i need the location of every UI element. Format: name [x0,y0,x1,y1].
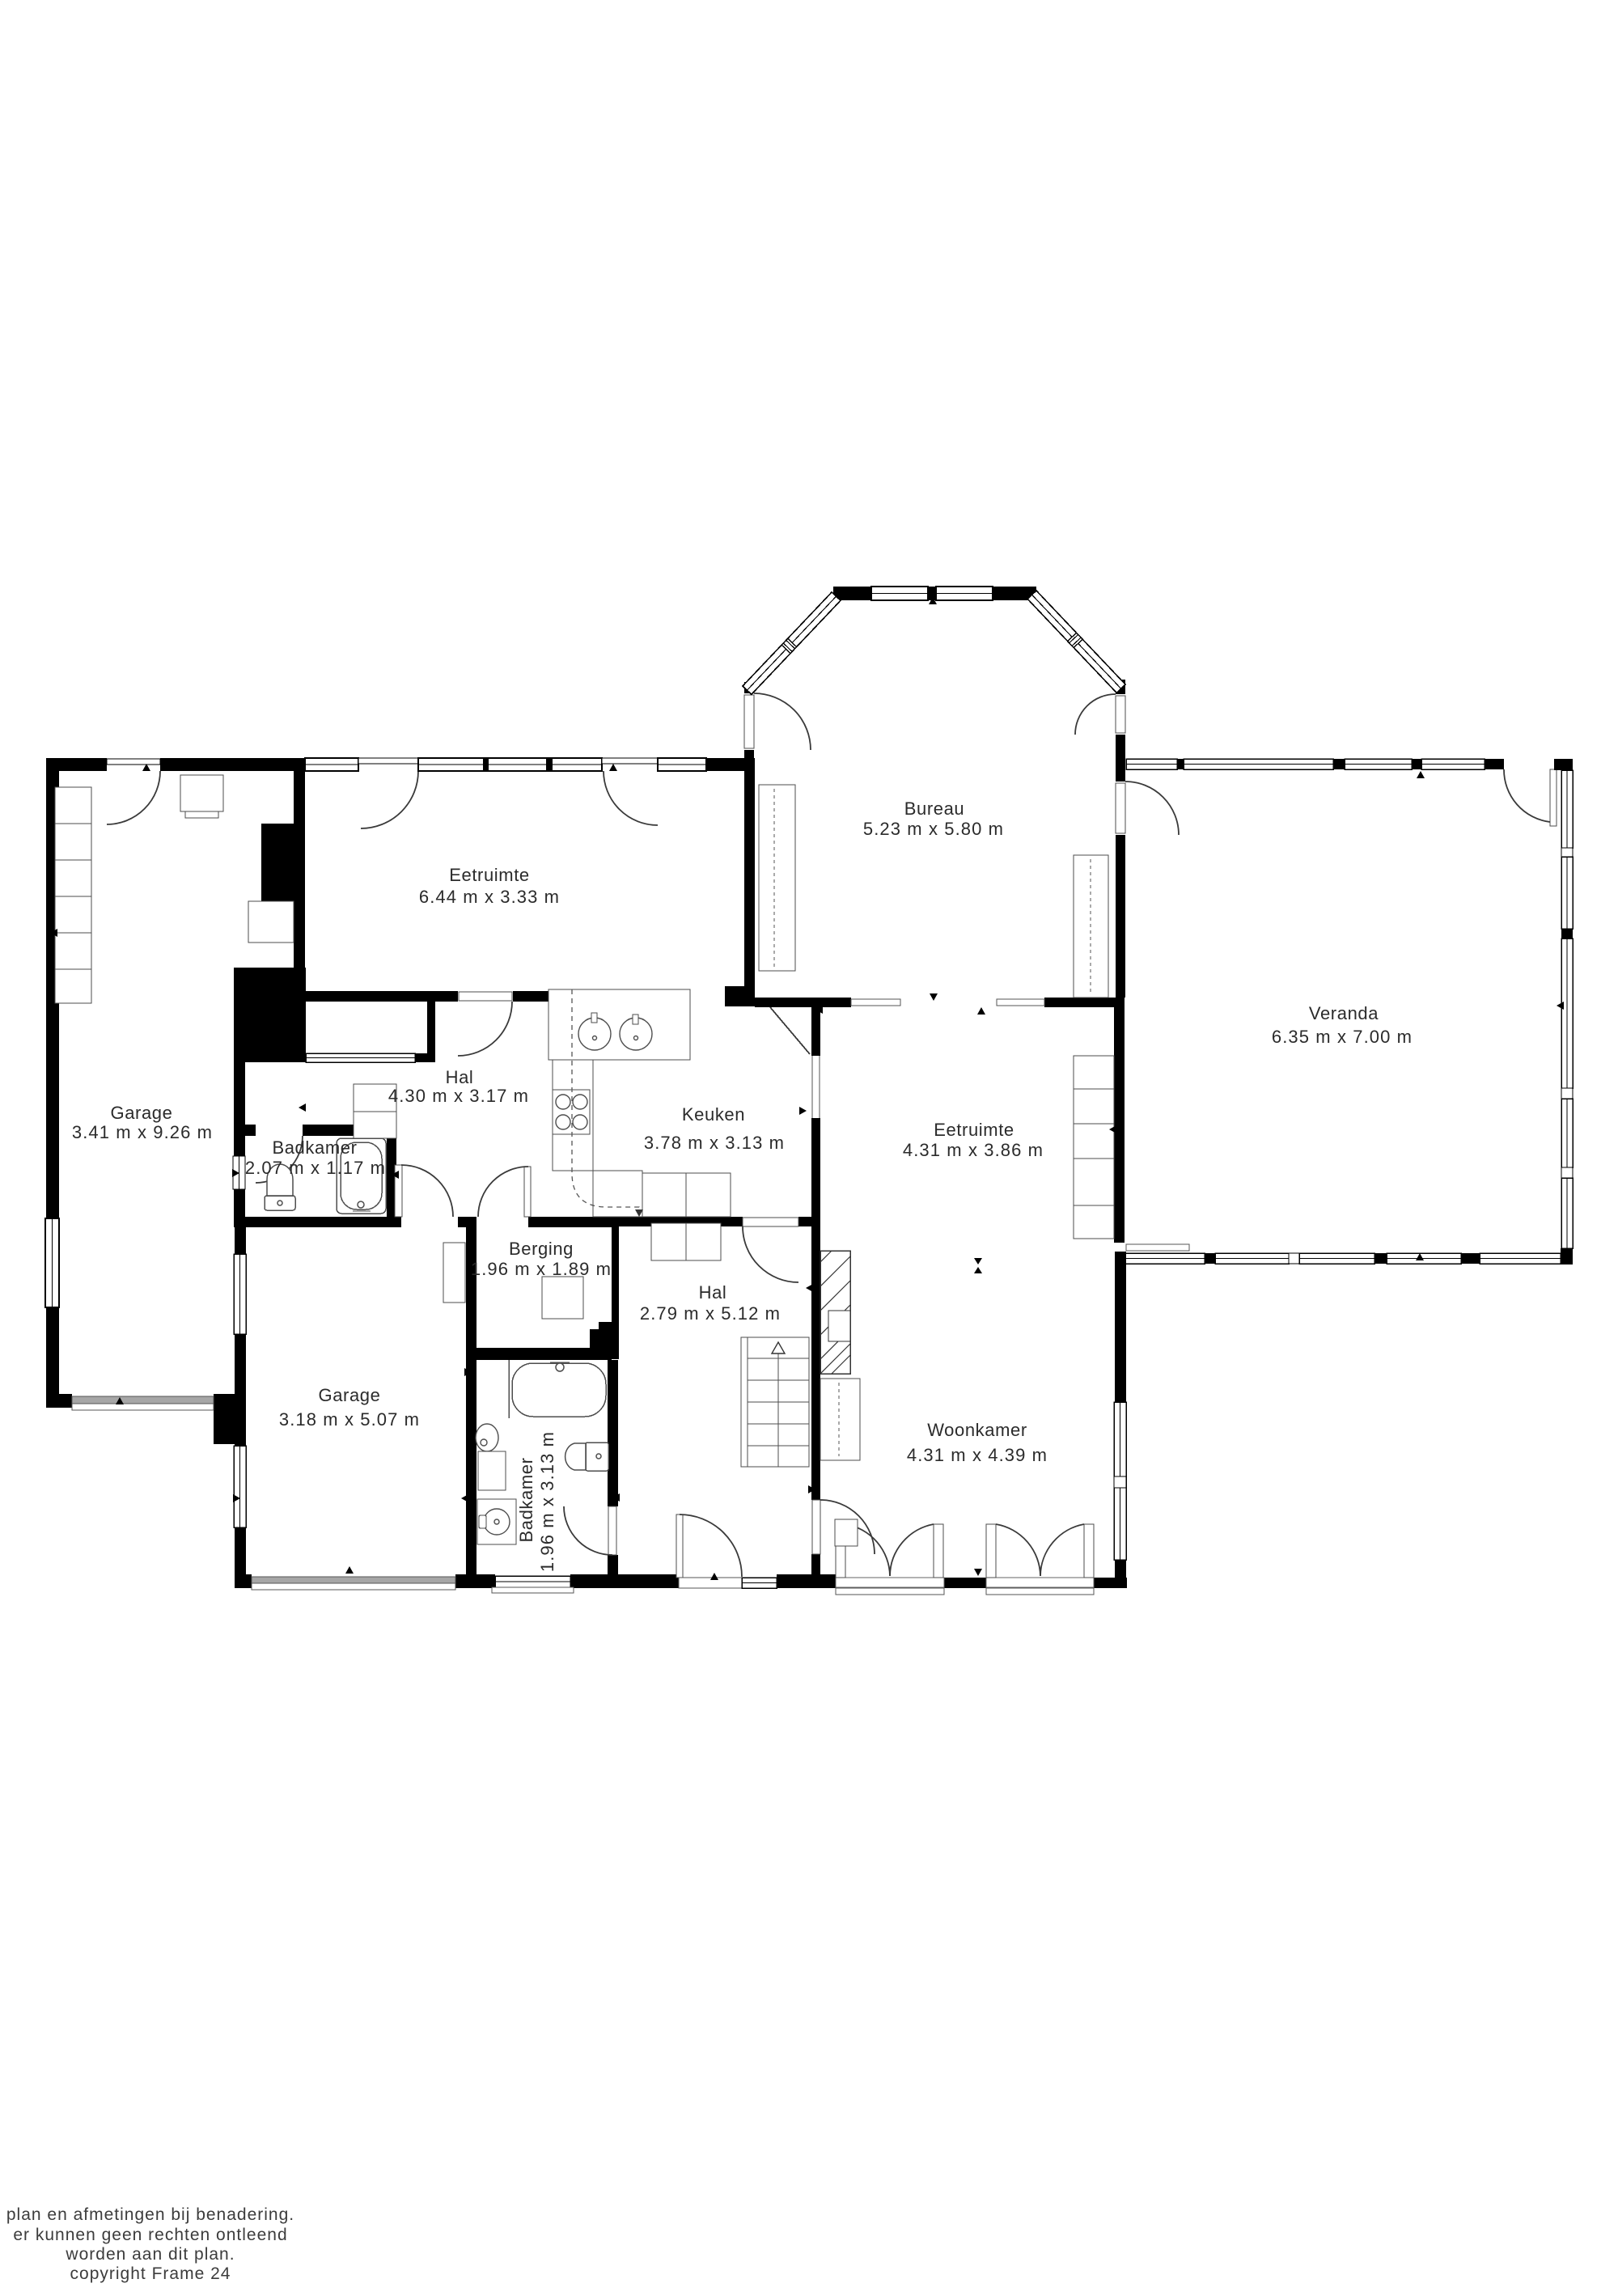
svg-text:Garage: Garage [111,1103,173,1123]
svg-text:Eetruimte: Eetruimte [934,1120,1014,1140]
svg-text:1.96 m x 3.13 m: 1.96 m x 3.13 m [537,1431,557,1572]
svg-text:copyright Frame 24: copyright Frame 24 [70,2264,231,2283]
svg-text:4.31 m x 3.86 m: 4.31 m x 3.86 m [903,1140,1044,1160]
svg-text:plan en afmetingen bij benader: plan en afmetingen bij benadering. [6,2205,294,2224]
svg-text:worden aan dit plan.: worden aan dit plan. [65,2245,235,2264]
svg-text:Eetruimte: Eetruimte [449,865,530,885]
svg-text:Woonkamer: Woonkamer [927,1420,1027,1440]
svg-text:Badkamer: Badkamer [272,1137,357,1158]
svg-text:er kunnen geen rechten ontleen: er kunnen geen rechten ontleend [13,2226,287,2244]
svg-text:2.79 m x 5.12 m: 2.79 m x 5.12 m [640,1303,781,1324]
svg-text:3.18 m x 5.07 m: 3.18 m x 5.07 m [279,1409,420,1430]
svg-text:Berging: Berging [509,1239,574,1259]
svg-text:Bureau: Bureau [904,799,965,819]
svg-text:6.35 m x 7.00 m: 6.35 m x 7.00 m [1272,1027,1413,1047]
svg-text:3.78 m x 3.13 m: 3.78 m x 3.13 m [644,1133,785,1153]
svg-text:6.44 m x 3.33 m: 6.44 m x 3.33 m [419,887,560,907]
svg-text:4.31 m x 4.39 m: 4.31 m x 4.39 m [907,1445,1048,1465]
svg-text:4.30 m x 3.17 m: 4.30 m x 3.17 m [388,1086,529,1106]
svg-text:5.23 m x 5.80 m: 5.23 m x 5.80 m [863,819,1004,839]
svg-text:1.96 m x 1.89 m: 1.96 m x 1.89 m [471,1259,612,1279]
svg-text:Badkamer: Badkamer [516,1457,536,1542]
svg-text:3.41 m x 9.26 m: 3.41 m x 9.26 m [72,1122,213,1142]
svg-text:Hal: Hal [446,1067,474,1087]
svg-text:Hal: Hal [699,1282,727,1303]
svg-text:Garage: Garage [319,1385,381,1405]
svg-text:Keuken: Keuken [682,1104,745,1125]
svg-text:2.07 m x 1.17 m: 2.07 m x 1.17 m [245,1158,386,1178]
svg-text:Veranda: Veranda [1309,1003,1379,1023]
